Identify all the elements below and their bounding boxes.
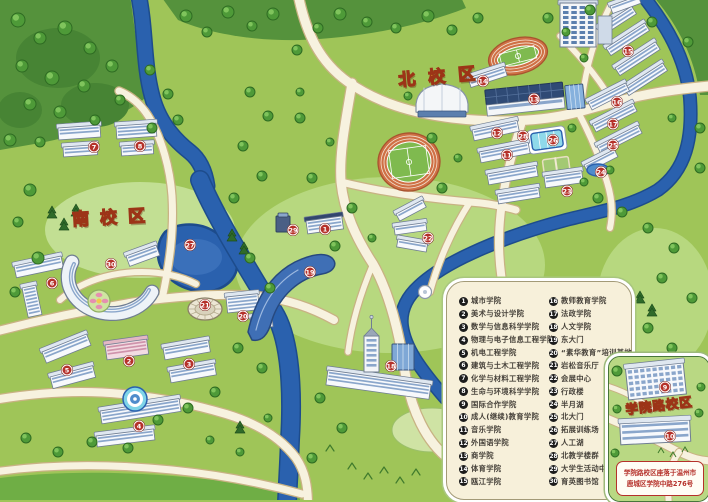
map-marker-1: 1 bbox=[320, 224, 331, 235]
legend-item-number: 27 bbox=[549, 439, 558, 448]
legend-item-label: 城市学院 bbox=[471, 296, 501, 306]
legend-item-label: 人工湖 bbox=[561, 438, 584, 448]
legend-item-label: 北教学楼群 bbox=[561, 451, 599, 461]
legend-item-label: 瓯江学院 bbox=[471, 477, 501, 487]
map-marker-20: 20 bbox=[238, 311, 249, 322]
legend-item-label: 体育学院 bbox=[471, 464, 501, 474]
legend-item-label: 拓展训练场 bbox=[561, 425, 599, 435]
legend-item-label: 岩松音乐厅 bbox=[561, 361, 599, 371]
map-marker-22: 22 bbox=[423, 233, 434, 244]
legend-item-number: 1 bbox=[459, 297, 468, 306]
legend-item: 8生命与环境科学学院 bbox=[459, 385, 545, 398]
legend-item-label: 国际合作学院 bbox=[471, 400, 517, 410]
legend-item-label: 美术与设计学院 bbox=[471, 309, 524, 319]
legend-item-number: 29 bbox=[549, 465, 558, 474]
map-marker-11: 11 bbox=[502, 150, 513, 161]
inset-address-box: 学院路校区座落于温州市 鹿城区学院中路276号 bbox=[616, 461, 704, 496]
legend-item: 5机电工程学院 bbox=[459, 347, 545, 360]
legend-item-number: 12 bbox=[459, 439, 468, 448]
legend-item: 12外国语学院 bbox=[459, 437, 545, 450]
legend-item-number: 24 bbox=[549, 400, 558, 409]
legend-item-label: 外国语学院 bbox=[471, 438, 509, 448]
legend-item-number: 15 bbox=[459, 477, 468, 486]
legend-item-number: 5 bbox=[459, 349, 468, 358]
legend-item-number: 14 bbox=[459, 465, 468, 474]
legend-item-label: 行政楼 bbox=[561, 387, 584, 397]
legend-item-number: 11 bbox=[459, 426, 468, 435]
legend-item: 10成人(继续)教育学院 bbox=[459, 411, 545, 424]
legend-item: 14体育学院 bbox=[459, 463, 545, 476]
legend-item-label: 机电工程学院 bbox=[471, 348, 517, 358]
legend-item-label: 生命与环境科学学院 bbox=[471, 387, 539, 397]
legend-item-label: 物理与电子信息工程学院 bbox=[471, 335, 555, 345]
map-marker-6: 6 bbox=[47, 278, 58, 289]
legend-item-label: 音乐学院 bbox=[471, 425, 501, 435]
legend-item-number: 22 bbox=[549, 374, 558, 383]
map-marker-16: 16 bbox=[612, 97, 623, 108]
legend-item-number: 20 bbox=[549, 349, 558, 358]
legend-item-label: 成人(继续)教育学院 bbox=[471, 412, 539, 422]
legend-item-label: 数学与信息科学学院 bbox=[471, 322, 539, 332]
map-marker-8: 8 bbox=[135, 141, 146, 152]
legend-item: 7化学与材料工程学院 bbox=[459, 372, 545, 385]
map-marker-4: 4 bbox=[134, 421, 145, 432]
legend-item: 13商学院 bbox=[459, 450, 545, 463]
map-marker-18: 18 bbox=[386, 361, 397, 372]
map-marker-28: 28 bbox=[518, 131, 529, 142]
map-marker-17: 17 bbox=[608, 119, 619, 130]
campus-map: 北校区 南校区 1城市学院2美术与设计学院3数学与信息科学学院4物理与电子信息工… bbox=[0, 0, 708, 500]
legend-item: 19东大门 bbox=[549, 334, 632, 347]
legend-item-number: 4 bbox=[459, 336, 468, 345]
map-marker-26: 26 bbox=[548, 135, 559, 146]
legend-item-number: 9 bbox=[459, 400, 468, 409]
legend-item-number: 19 bbox=[549, 336, 558, 345]
map-marker-9: 9 bbox=[660, 382, 671, 393]
legend-item-label: 东大门 bbox=[561, 335, 584, 345]
map-marker-19: 19 bbox=[305, 267, 316, 278]
legend-item-label: 商学院 bbox=[471, 451, 494, 461]
legend-item-label: 法政学院 bbox=[561, 309, 591, 319]
legend-item-label: 半月湖 bbox=[561, 400, 584, 410]
map-marker-12: 12 bbox=[492, 128, 503, 139]
legend-item: 18人文学院 bbox=[549, 321, 632, 334]
legend-item-number: 23 bbox=[549, 387, 558, 396]
map-marker-29: 29 bbox=[288, 225, 299, 236]
legend-item: 16教师教育学院 bbox=[549, 295, 632, 308]
legend-item-label: 北大门 bbox=[561, 412, 584, 422]
map-marker-10: 10 bbox=[665, 431, 676, 442]
map-marker-21: 21 bbox=[200, 300, 211, 311]
legend-item-number: 30 bbox=[549, 477, 558, 486]
legend-item-number: 13 bbox=[459, 452, 468, 461]
legend-item-number: 2 bbox=[459, 310, 468, 319]
map-marker-25: 25 bbox=[608, 140, 619, 151]
map-marker-5: 5 bbox=[62, 365, 73, 376]
legend-item: 11音乐学院 bbox=[459, 424, 545, 437]
legend-panel: 1城市学院2美术与设计学院3数学与信息科学学院4物理与电子信息工程学院5机电工程… bbox=[446, 281, 632, 500]
legend-item-number: 10 bbox=[459, 413, 468, 422]
inset-address-line2: 鹿城区学院中路276号 bbox=[627, 479, 694, 490]
inset-address-line1: 学院路校区座落于温州市 bbox=[624, 468, 697, 479]
legend-item-number: 17 bbox=[549, 310, 558, 319]
legend-item: 17法政学院 bbox=[549, 308, 632, 321]
map-marker-2: 2 bbox=[124, 356, 135, 367]
legend-item-label: 建筑与土木工程学院 bbox=[471, 361, 539, 371]
legend-item-number: 28 bbox=[549, 452, 558, 461]
legend-item-label: 化学与材料工程学院 bbox=[471, 374, 539, 384]
legend-item-number: 25 bbox=[549, 413, 558, 422]
legend-item-label: 教师教育学院 bbox=[561, 296, 607, 306]
legend-item-label: 育英图书馆 bbox=[561, 477, 599, 487]
map-marker-13: 13 bbox=[529, 94, 540, 105]
map-marker-15: 15 bbox=[623, 46, 634, 57]
xueyuan-road-campus-inset: 学院路校区 学院路校区座落于温州市 鹿城区学院中路276号 bbox=[608, 356, 708, 502]
legend-item-number: 6 bbox=[459, 361, 468, 370]
legend-item-number: 21 bbox=[549, 361, 558, 370]
map-marker-14: 14 bbox=[478, 76, 489, 87]
legend-item-label: 人文学院 bbox=[561, 322, 591, 332]
legend-item: 9国际合作学院 bbox=[459, 398, 545, 411]
legend-item: 3数学与信息科学学院 bbox=[459, 321, 545, 334]
map-marker-7: 7 bbox=[89, 142, 100, 153]
map-marker-23: 23 bbox=[562, 186, 573, 197]
legend-column-left: 1城市学院2美术与设计学院3数学与信息科学学院4物理与电子信息工程学院5机电工程… bbox=[459, 295, 545, 493]
legend-item: 6建筑与土木工程学院 bbox=[459, 359, 545, 372]
legend-item-number: 3 bbox=[459, 323, 468, 332]
legend-item: 4物理与电子信息工程学院 bbox=[459, 334, 545, 347]
legend-item: 15瓯江学院 bbox=[459, 475, 545, 488]
map-marker-3: 3 bbox=[184, 359, 195, 370]
legend-item-number: 7 bbox=[459, 374, 468, 383]
map-marker-30: 30 bbox=[106, 259, 117, 270]
map-marker-27: 27 bbox=[185, 240, 196, 251]
legend-item-number: 26 bbox=[549, 426, 558, 435]
legend-item-number: 16 bbox=[549, 297, 558, 306]
legend-item: 2美术与设计学院 bbox=[459, 308, 545, 321]
legend-item-label: 大学生活动中心 bbox=[561, 464, 614, 474]
legend-item-label: 会展中心 bbox=[561, 374, 591, 384]
legend-item-number: 8 bbox=[459, 387, 468, 396]
legend-item-number: 18 bbox=[549, 323, 558, 332]
legend-item: 1城市学院 bbox=[459, 295, 545, 308]
map-marker-24: 24 bbox=[596, 167, 607, 178]
